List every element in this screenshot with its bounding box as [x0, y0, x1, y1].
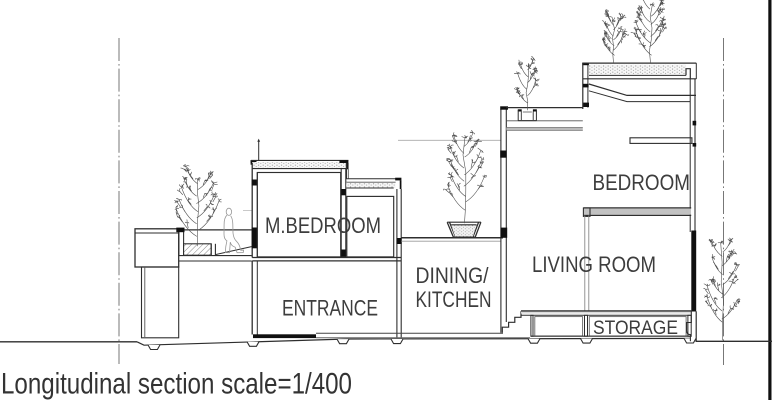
svg-text:ENTRANCE: ENTRANCE — [282, 296, 378, 321]
svg-text:Longitudinal section scale=1/4: Longitudinal section scale=1/400 — [1, 368, 352, 400]
svg-text:DINING/: DINING/ — [416, 263, 490, 288]
svg-text:LIVING ROOM: LIVING ROOM — [532, 252, 656, 277]
svg-text:STORAGE: STORAGE — [593, 317, 678, 339]
svg-text:KITCHEN: KITCHEN — [416, 287, 492, 312]
svg-text:M.BEDROOM: M.BEDROOM — [265, 213, 381, 238]
svg-text:BEDROOM: BEDROOM — [593, 170, 691, 195]
